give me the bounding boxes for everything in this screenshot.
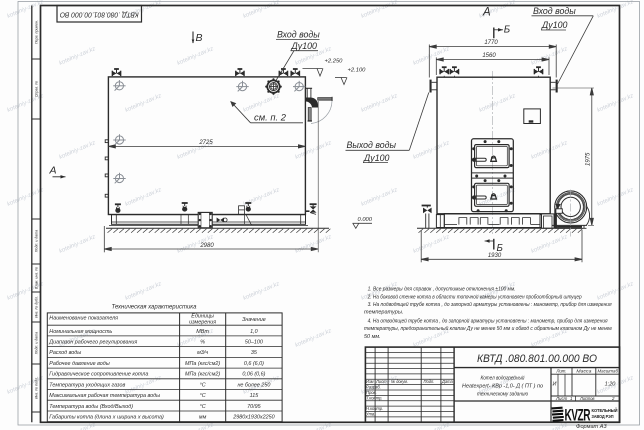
svg-text:Формат А3: Формат А3 <box>576 424 607 430</box>
svg-text:Инв. № дубл.: Инв. № дубл. <box>35 296 39 318</box>
svg-text:температуры.: температуры. <box>364 310 403 316</box>
svg-text:Пров.: Пров. <box>366 390 377 395</box>
svg-text:°С: °С <box>200 393 206 399</box>
svg-text:0,6 (6,0): 0,6 (6,0) <box>244 361 264 367</box>
svg-text:KVZR: KVZR <box>565 406 591 425</box>
svg-text:Техническая характеристика: Техническая характеристика <box>112 304 198 310</box>
svg-text:1560: 1560 <box>482 53 496 59</box>
svg-text:А: А <box>482 7 491 19</box>
svg-text:0.000: 0.000 <box>358 217 373 223</box>
svg-text:1770: 1770 <box>484 40 498 46</box>
svg-text:2980х1930х2250: 2980х1930х2250 <box>232 415 274 421</box>
svg-text:Лист: Лист <box>555 396 568 401</box>
svg-text:№ докум.: № докум. <box>391 379 408 384</box>
svg-text:3. На подводящей трубе котла: 3. На подводящей трубе котла , до запорн… <box>368 301 612 308</box>
svg-text:Габариты котла (длина х ширина: Габариты котла (длина х ширина х высота) <box>49 415 164 421</box>
svg-text:Рабочее давление воды: Рабочее давление воды <box>49 361 109 367</box>
svg-text:Расход воды: Расход воды <box>49 350 81 356</box>
svg-text:Подп. и дата: Подп. и дата <box>35 332 39 355</box>
svg-text:2725: 2725 <box>198 140 213 146</box>
svg-text:Лит.: Лит. <box>555 368 566 373</box>
svg-text:1. Все размеры для справок ,: 1. Все размеры для справок , допустимые … <box>368 287 516 293</box>
svg-text:50–100: 50–100 <box>245 340 263 346</box>
svg-text:Вход воды: Вход воды <box>533 6 576 16</box>
svg-text:%: % <box>200 340 205 346</box>
svg-text:измерения: измерения <box>189 319 216 325</box>
svg-text:И: И <box>553 382 557 388</box>
svg-text:см. п. 2: см. п. 2 <box>254 112 287 123</box>
svg-text:4. На отводящей трубе котла ,: 4. На отводящей трубе котла , до запорно… <box>368 317 608 324</box>
svg-text:Диапазон рабочего регулировани: Диапазон рабочего регулирования <box>48 340 137 346</box>
svg-text:Дата: Дата <box>441 379 454 384</box>
svg-text:0,06 (0,6): 0,06 (0,6) <box>242 372 265 378</box>
svg-text:+2.100: +2.100 <box>348 68 367 74</box>
svg-text:Максимальная рабочая температу: Максимальная рабочая температура воды <box>49 393 160 399</box>
svg-text:Лист: Лист <box>375 379 387 384</box>
svg-text:Выход воды: Выход воды <box>347 140 397 150</box>
svg-text:Ду100: Ду100 <box>541 20 567 30</box>
svg-text:температуры, предохранительный: температуры, предохранительный клапан Ду… <box>364 325 612 332</box>
svg-text:Наименование показателя: Наименование показателя <box>49 316 118 322</box>
svg-text:Гидравлическое сопротивление к: Гидравлическое сопротивление котла <box>49 372 148 378</box>
svg-text:Heatexpert- КВр -1,0- Д ( ПТ ): Heatexpert- КВр -1,0- Д ( ПТ ) по <box>462 383 543 389</box>
svg-text:Подп. и дата: Подп. и дата <box>35 230 39 253</box>
svg-text:Значение: Значение <box>242 317 266 323</box>
svg-text:не более 250: не более 250 <box>237 382 270 388</box>
svg-text:Масса: Масса <box>576 368 592 373</box>
svg-text:КОТЕЛЬНЫЙ: КОТЕЛЬНЫЙ <box>592 406 618 413</box>
svg-text:1930: 1930 <box>488 253 502 259</box>
svg-text:В: В <box>196 32 203 44</box>
svg-text:техническому заданию: техническому заданию <box>477 391 528 397</box>
svg-text:70/95: 70/95 <box>247 404 261 410</box>
svg-text:1:20: 1:20 <box>605 382 617 388</box>
svg-text:Температура воды (Вход/Выход): Температура воды (Вход/Выход) <box>49 404 133 410</box>
svg-text:КВТД .080.801.00.000 ВО: КВТД .080.801.00.000 ВО <box>60 11 139 20</box>
svg-text:Справ. №: Справ. № <box>35 81 39 97</box>
svg-text:Разраб.: Разраб. <box>366 385 381 390</box>
svg-text:°С: °С <box>200 382 206 388</box>
svg-text:115: 115 <box>250 393 260 399</box>
svg-text:Номинальная мощность: Номинальная мощность <box>49 329 112 335</box>
svg-text:МПа (кгс/см2): МПа (кгс/см2) <box>185 361 220 367</box>
svg-text:Н.контр.: Н.контр. <box>366 406 383 411</box>
svg-text:35: 35 <box>251 350 258 356</box>
svg-text:Изм: Изм <box>366 379 374 384</box>
svg-text:Ду100: Ду100 <box>291 41 317 51</box>
svg-text:Листов: Листов <box>579 396 595 401</box>
svg-text:50 мм.: 50 мм. <box>364 334 381 340</box>
svg-text:Т.контр.: Т.контр. <box>366 395 383 400</box>
svg-text:КВТД .080.801.00.000 ВО: КВТД .080.801.00.000 ВО <box>477 353 597 365</box>
svg-text:2: 2 <box>611 396 615 401</box>
svg-text:1975: 1975 <box>586 152 592 166</box>
svg-text:°С: °С <box>200 404 206 410</box>
svg-text:Б: Б <box>504 25 511 36</box>
svg-text:Утв.: Утв. <box>366 411 375 416</box>
svg-text:Инв. № подл.: Инв. № подл. <box>35 377 39 399</box>
svg-text:2980: 2980 <box>199 243 214 249</box>
svg-text:Подп.: Подп. <box>424 379 435 384</box>
svg-text:МПа (кгс/см2): МПа (кгс/см2) <box>185 372 220 378</box>
svg-text:м3/ч: м3/ч <box>197 350 208 356</box>
svg-text:+2.250: +2.250 <box>325 59 344 65</box>
svg-text:Вход воды: Вход воды <box>277 30 320 40</box>
svg-text:Перв. примен.: Перв. примен. <box>35 20 39 44</box>
svg-text:2. На боковой стенке котла в: 2. На боковой стенке котла в области топ… <box>367 293 582 300</box>
svg-text:А: А <box>49 165 57 177</box>
svg-text:1,0: 1,0 <box>250 329 258 335</box>
svg-text:МВт: МВт <box>196 329 209 335</box>
svg-text:мм: мм <box>199 415 207 421</box>
svg-text:Котел водогрейный: Котел водогрейный <box>481 374 525 381</box>
svg-text:Взам. инв. №: Взам. инв. № <box>35 267 39 289</box>
svg-text:Масштаб: Масштаб <box>597 368 618 373</box>
svg-text:ЗАВОД РЭП: ЗАВОД РЭП <box>592 414 614 419</box>
svg-text:Ду100: Ду100 <box>363 153 389 163</box>
svg-text:Температура уходящих газов: Температура уходящих газов <box>49 382 125 388</box>
